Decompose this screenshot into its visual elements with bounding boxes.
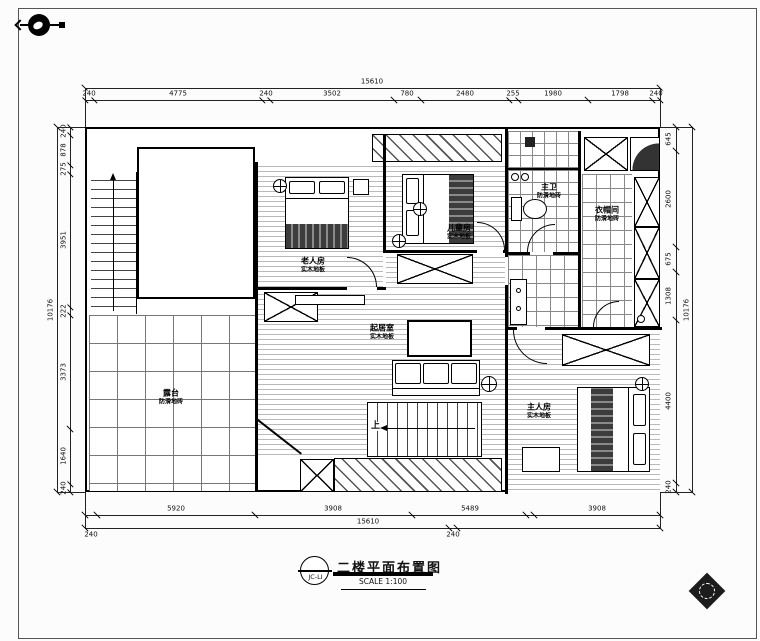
master-floor-note: 实木地板 xyxy=(527,412,551,420)
wall xyxy=(545,327,662,330)
dim-bottom-seg-1: 3908 xyxy=(323,506,343,513)
master-wardrobe xyxy=(562,334,650,366)
dim-top-seg-7: 1980 xyxy=(543,91,563,98)
dim-top-seg-1: 4775 xyxy=(168,91,188,98)
drawing-scale: SCALE 1:100 xyxy=(359,577,407,586)
stair-arrow-head xyxy=(380,425,387,431)
bed-line xyxy=(628,388,629,471)
ceiling-light-icon xyxy=(635,377,649,391)
cabinet xyxy=(584,137,628,171)
double-height-void xyxy=(137,147,255,299)
skylight-hatch-top xyxy=(372,134,502,162)
shower-tile-floor xyxy=(508,131,578,168)
sink-icon xyxy=(511,173,519,181)
sofa-cushion xyxy=(395,363,421,384)
dim-left-seg-1: 878 xyxy=(61,142,68,157)
vanity xyxy=(510,279,527,325)
master-name: 主人房 xyxy=(527,402,551,412)
wall xyxy=(377,287,386,290)
dim-line-right-overall xyxy=(692,127,693,492)
dim-left-seg-3: 3951 xyxy=(61,230,68,250)
pillow xyxy=(289,181,315,194)
terrace-floor-note: 防滑地砖 xyxy=(159,398,183,406)
dim-right-overall: 10176 xyxy=(684,298,691,322)
title-tag-text: JC-LI xyxy=(301,573,330,581)
room-label-living: 起居室 实木地板 xyxy=(370,323,394,341)
wall xyxy=(383,250,477,253)
room-label-master: 主人房 实木地板 xyxy=(527,402,551,420)
dim-top-seg-9: 240 xyxy=(648,91,663,98)
living-floor-note: 实木地板 xyxy=(370,333,394,341)
dim-top-seg-0: 240 xyxy=(81,91,96,98)
dim-line-left-overall xyxy=(57,127,58,492)
witness-line xyxy=(57,492,85,493)
dim-bottom2-1: 15610 xyxy=(356,519,380,526)
sofa-cushion xyxy=(451,363,477,384)
nightstand xyxy=(353,179,369,195)
dim-left-overall: 10176 xyxy=(48,298,55,322)
dim-line-bottom-segments xyxy=(85,515,660,516)
dim-top-seg-8: 1798 xyxy=(610,91,630,98)
cabinet xyxy=(634,177,660,227)
floor-plan: 露台 防滑地砖 老人房 实木地板 儿童房 实木地板 起居室 实木地板 主人房 实… xyxy=(85,127,660,492)
stair-direction-line xyxy=(113,177,114,311)
wall xyxy=(505,285,508,494)
pillow xyxy=(406,178,419,204)
left-staircase xyxy=(91,172,137,314)
title-tag-circle: JC-LI xyxy=(300,556,329,585)
dim-left-seg-5: 3373 xyxy=(61,362,68,382)
dim-line-bottom-overall xyxy=(85,528,660,529)
room-label-bedroom-a: 老人房 实木地板 xyxy=(301,256,325,274)
logo-ring xyxy=(699,583,715,599)
wall xyxy=(578,131,581,327)
bed-a xyxy=(285,177,349,249)
dim-top-overall: 15610 xyxy=(360,79,384,86)
room-label-terrace: 露台 防滑地砖 xyxy=(159,388,183,406)
dim-right-seg-0: 645 xyxy=(666,131,673,146)
balcony-hatch-bottom xyxy=(334,458,502,492)
dim-left-seg-7: 240 xyxy=(61,480,68,495)
title-underline-bar xyxy=(333,572,433,576)
wardrobe-b xyxy=(397,254,473,284)
dim-left-seg-6: 1640 xyxy=(61,446,68,466)
tv-console xyxy=(295,295,365,305)
sofa xyxy=(392,360,480,396)
bedroom-b-floor-note: 实木地板 xyxy=(447,233,471,241)
toilet-bowl xyxy=(523,199,547,219)
wall xyxy=(508,168,578,170)
witness-line xyxy=(660,492,661,528)
dim-bottom2-2: 240 xyxy=(445,532,460,539)
dim-top-seg-5: 2480 xyxy=(455,91,475,98)
dim-top-seg-4: 780 xyxy=(399,91,414,98)
dim-line-top-segments xyxy=(85,100,660,101)
dim-left-seg-4: 222 xyxy=(61,303,68,318)
faucet-dot xyxy=(516,288,521,293)
fan-icon xyxy=(481,376,497,392)
witness-line xyxy=(57,127,85,128)
bed-line xyxy=(286,198,348,199)
coffee-table xyxy=(407,320,472,357)
pillow xyxy=(319,181,345,194)
master-bed xyxy=(577,387,650,472)
dim-right-seg-1: 2600 xyxy=(666,189,673,209)
dim-left-seg-2: 275 xyxy=(61,161,68,176)
room-label-utility: 衣帽间 防滑地砖 xyxy=(595,205,619,223)
company-logo-icon xyxy=(687,571,727,611)
dim-right-seg-3: 1308 xyxy=(666,286,673,306)
room-label-bedroom-b: 儿童房 实木地板 xyxy=(447,223,471,241)
desk xyxy=(522,447,560,472)
witness-line xyxy=(660,127,692,128)
living-name: 起居室 xyxy=(370,323,394,333)
utility-floor-note: 防滑地砖 xyxy=(595,215,619,223)
sofa-back xyxy=(393,388,479,395)
utility-name: 衣帽间 xyxy=(595,205,619,215)
dim-top-seg-2: 240 xyxy=(258,91,273,98)
wall xyxy=(508,252,530,255)
bedroom-a-floor-note: 实木地板 xyxy=(301,266,325,274)
dim-bottom-seg-2: 5489 xyxy=(460,506,480,513)
dim-left-seg-0: 240 xyxy=(61,123,68,138)
ceiling-light-icon xyxy=(392,234,406,248)
toilet-tank xyxy=(511,197,522,221)
dim-right-seg-4: 4400 xyxy=(666,391,673,411)
blanket xyxy=(591,388,613,471)
floorplan-sheet: 15610 240 4775 240 3502 780 2480 255 198… xyxy=(0,0,760,641)
ceiling-light-icon xyxy=(413,202,427,216)
wall xyxy=(255,162,258,492)
scale-underline xyxy=(341,589,426,590)
corner-unit xyxy=(630,137,660,171)
title-tag-divider xyxy=(298,570,332,572)
stair-arrow-head xyxy=(110,173,116,180)
bedroom-b-name: 儿童房 xyxy=(447,223,471,233)
sink-icon xyxy=(521,173,529,181)
bedroom-a-name: 老人房 xyxy=(301,256,325,266)
dim-line-right-segments xyxy=(676,127,677,492)
witness-line xyxy=(660,492,692,493)
witness-line xyxy=(85,88,86,127)
shower-head-icon xyxy=(525,137,535,147)
wall xyxy=(383,135,386,253)
dim-right-seg-2: 675 xyxy=(666,251,673,266)
ceiling-light-icon xyxy=(273,179,287,193)
wall xyxy=(553,252,580,255)
bath-name: 主卫 xyxy=(537,182,561,192)
cabinet xyxy=(300,459,334,492)
witness-line xyxy=(85,492,86,528)
terrace-name: 露台 xyxy=(159,388,183,398)
dim-top-seg-3: 3502 xyxy=(322,91,342,98)
dim-top-seg-6: 255 xyxy=(505,91,520,98)
wall xyxy=(505,129,508,257)
dim-bottom-seg-0: 5920 xyxy=(166,506,186,513)
pillow xyxy=(633,433,646,465)
faucet-dot xyxy=(516,306,521,311)
room-label-bath: 主卫 防滑地砖 xyxy=(537,182,561,200)
sofa-cushion xyxy=(423,363,449,384)
witness-line xyxy=(660,88,661,127)
cabinet xyxy=(634,227,660,279)
bath-floor-note: 防滑地砖 xyxy=(537,192,561,200)
pillow xyxy=(633,394,646,426)
blanket xyxy=(286,224,348,248)
stairs-up-label: 上 xyxy=(371,422,380,431)
dim-bottom2-0: 240 xyxy=(83,532,98,539)
wall xyxy=(255,287,347,290)
small-circle-symbol xyxy=(637,315,645,323)
stair-arrow-line xyxy=(387,428,475,429)
north-arrow-tail-square xyxy=(59,22,65,28)
dim-bottom-seg-3: 3908 xyxy=(587,506,607,513)
